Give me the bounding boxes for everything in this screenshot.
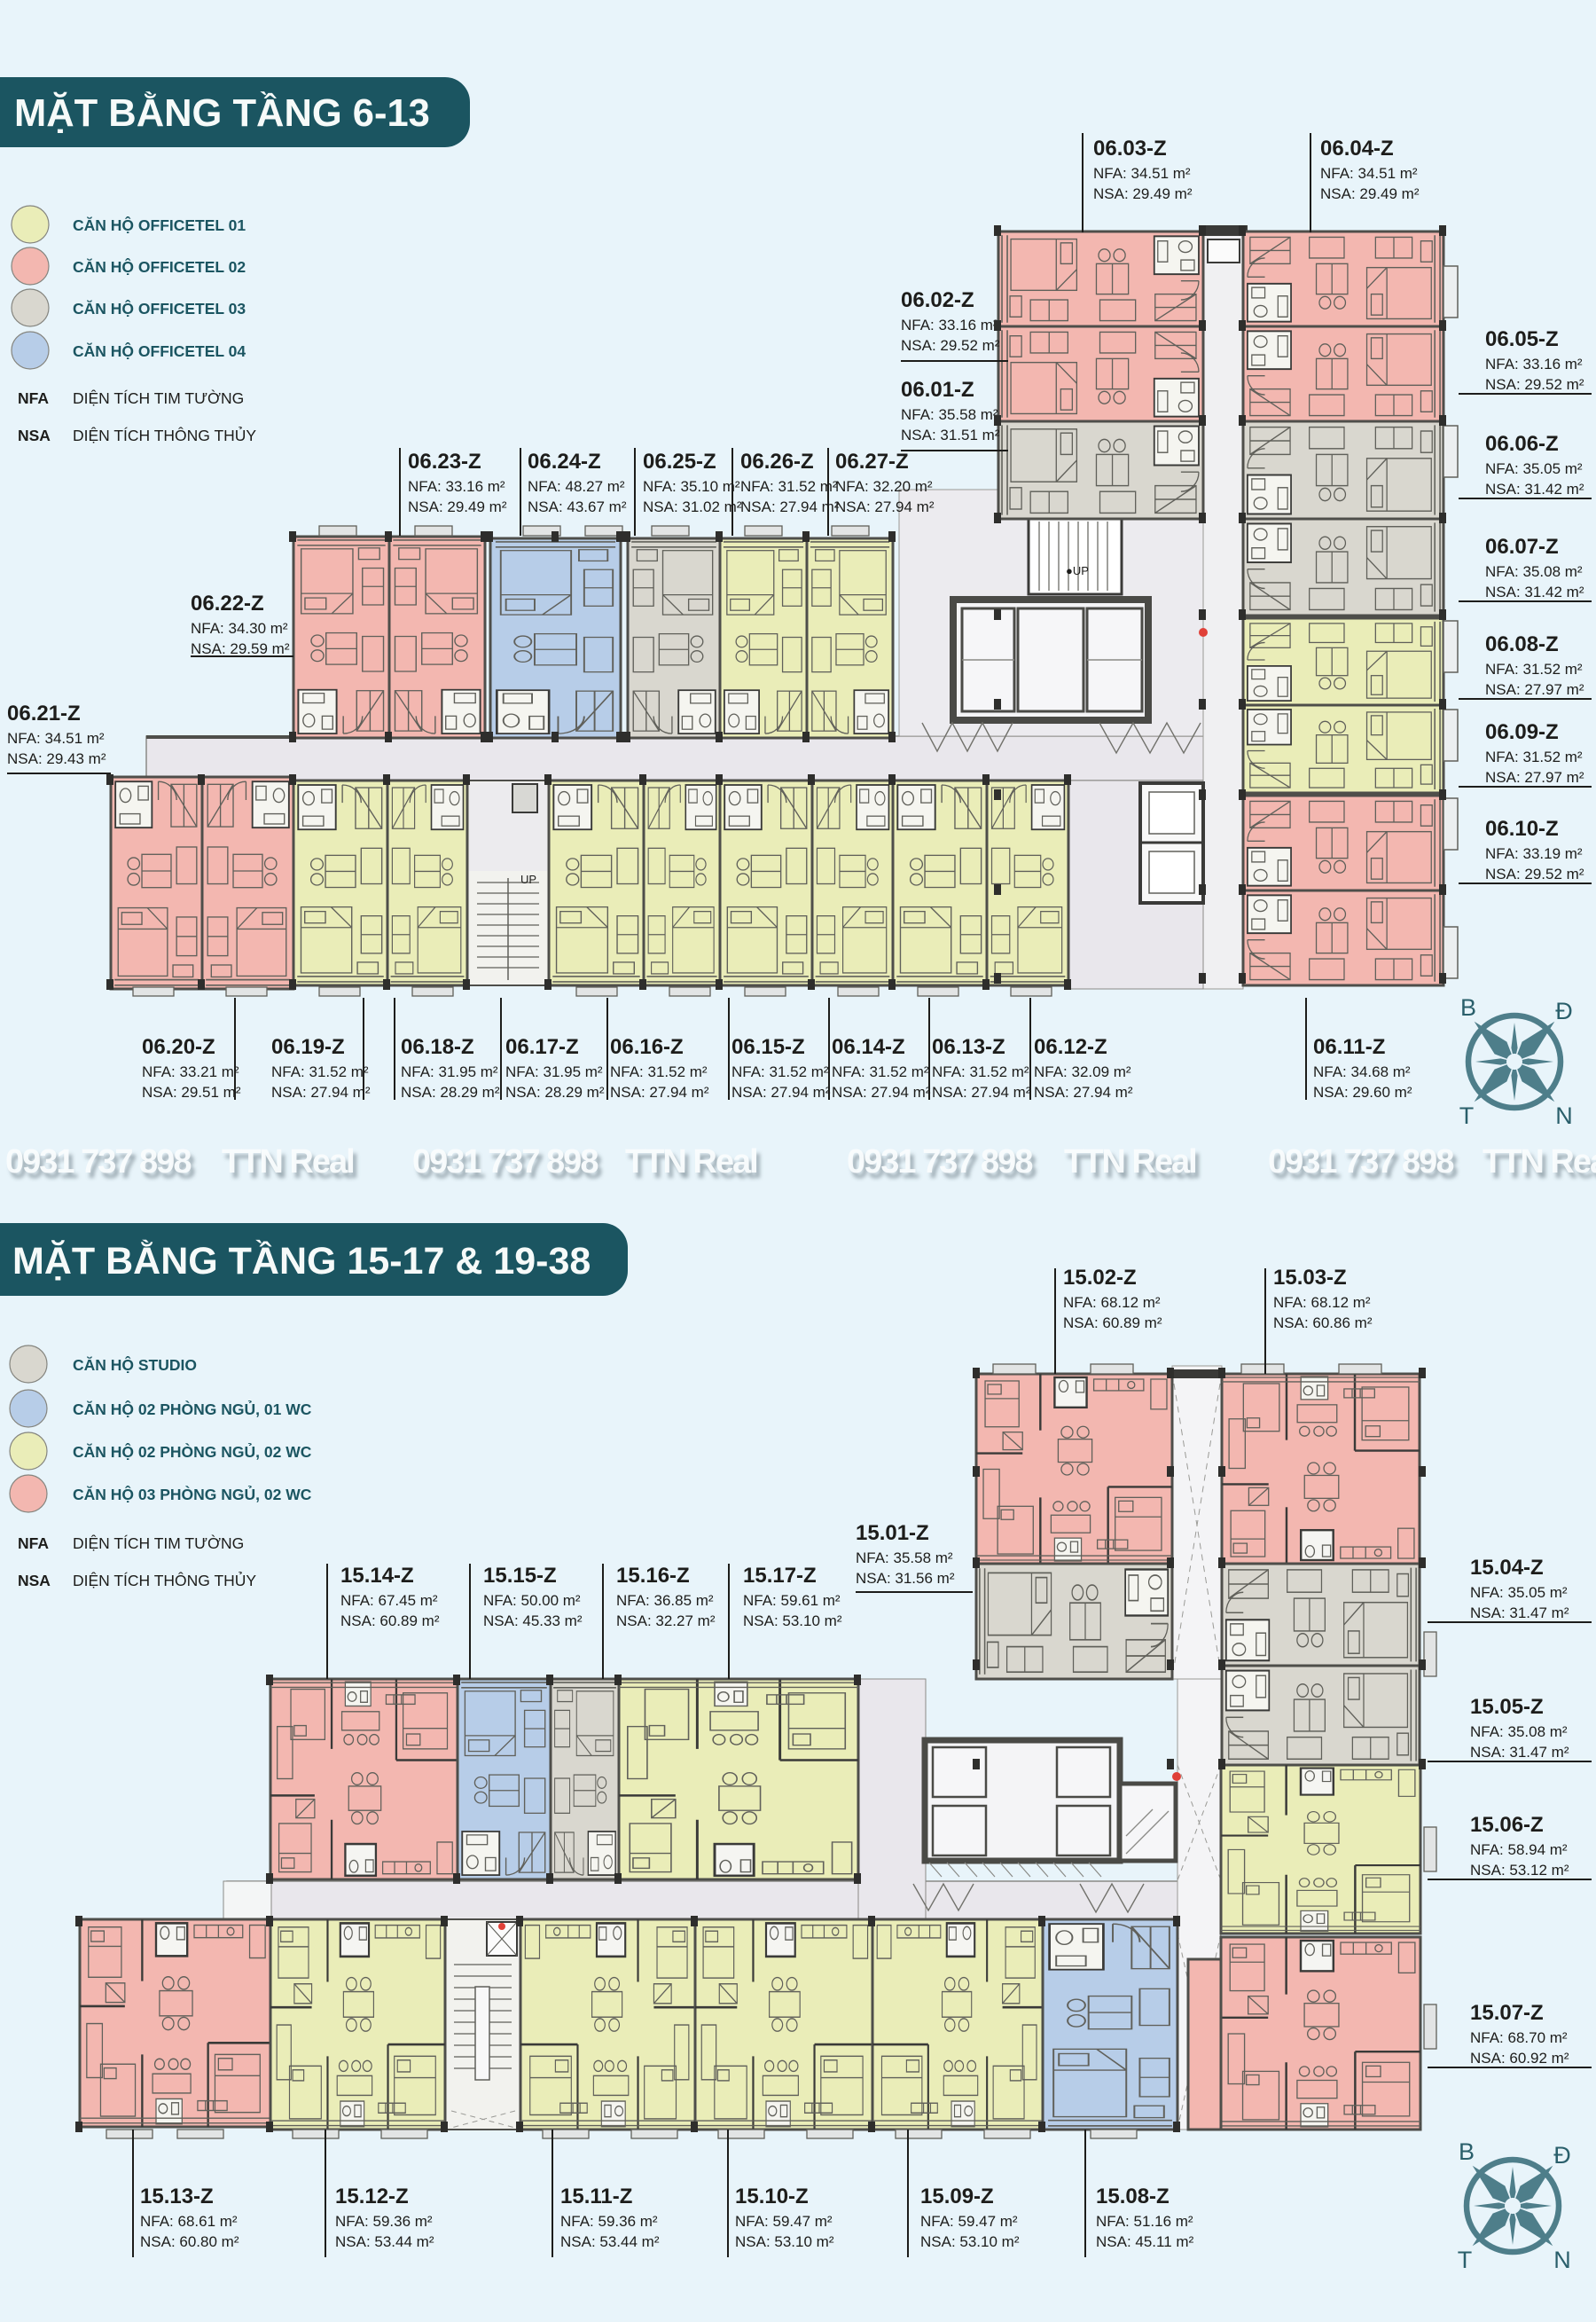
svg-text:NFA: 68.61 m²: NFA: 68.61 m² [140, 2213, 238, 2230]
svg-text:NSA: 60.89 m²: NSA: 60.89 m² [1063, 1314, 1162, 1331]
svg-text:NFA: 59.36 m²: NFA: 59.36 m² [335, 2213, 433, 2230]
svg-text:06.13-Z: 06.13-Z [932, 1035, 1005, 1059]
svg-text:NFA: 33.16 m²: NFA: 33.16 m² [408, 478, 505, 495]
svg-text:NFA: 31.52 m²: NFA: 31.52 m² [740, 478, 838, 495]
svg-text:06.04-Z: 06.04-Z [1320, 137, 1394, 161]
svg-text:NSA: 28.29 m²: NSA: 28.29 m² [401, 1084, 500, 1101]
svg-text:NSA: 28.29 m²: NSA: 28.29 m² [505, 1084, 605, 1101]
svg-text:NSA: 29.49 m²: NSA: 29.49 m² [408, 498, 507, 515]
svg-text:06.12-Z: 06.12-Z [1034, 1035, 1107, 1059]
svg-text:NSA: NSA [18, 427, 51, 444]
svg-text:NSA: 29.52 m²: NSA: 29.52 m² [1485, 866, 1584, 883]
svg-text:NFA: 33.21 m²: NFA: 33.21 m² [142, 1063, 239, 1080]
svg-text:NFA: 35.05 m²: NFA: 35.05 m² [1470, 1584, 1568, 1601]
svg-text:NFA: 35.08 m²: NFA: 35.08 m² [1485, 563, 1583, 580]
svg-text:CĂN HỘ 03 PHÒNG NGỦ, 02 WC: CĂN HỘ 03 PHÒNG NGỦ, 02 WC [73, 1485, 312, 1503]
svg-text:Đ: Đ [1553, 2142, 1571, 2169]
svg-text:CĂN HỘ 02 PHÒNG NGỦ, 02 WC: CĂN HỘ 02 PHÒNG NGỦ, 02 WC [73, 1442, 312, 1461]
svg-text:NFA: 36.85 m²: NFA: 36.85 m² [616, 1592, 714, 1609]
svg-text:NSA: 60.89 m²: NSA: 60.89 m² [340, 1612, 440, 1629]
svg-text:06.23-Z: 06.23-Z [408, 450, 481, 474]
svg-text:N: N [1553, 2247, 1571, 2273]
svg-text:NFA: 35.05 m²: NFA: 35.05 m² [1485, 460, 1583, 477]
svg-text:NFA: 31.52 m²: NFA: 31.52 m² [610, 1063, 708, 1080]
svg-text:Đ: Đ [1555, 998, 1573, 1024]
svg-text:NFA: 32.09 m²: NFA: 32.09 m² [1034, 1063, 1131, 1080]
svg-text:15.07-Z: 15.07-Z [1470, 2001, 1544, 2025]
svg-text:DIỆN TÍCH TIM TƯỜNG: DIỆN TÍCH TIM TƯỜNG [73, 1534, 244, 1552]
svg-text:NFA: 35.08 m²: NFA: 35.08 m² [1470, 1723, 1568, 1740]
svg-text:15.06-Z: 15.06-Z [1470, 1813, 1544, 1837]
svg-text:NSA: 45.11 m²: NSA: 45.11 m² [1096, 2233, 1194, 2250]
svg-text:TTN Real: TTN Real [625, 1143, 757, 1181]
svg-text:NSA: 31.42 m²: NSA: 31.42 m² [1485, 584, 1584, 600]
svg-text:NFA: NFA [18, 1534, 49, 1552]
svg-text:NSA: 53.10 m²: NSA: 53.10 m² [735, 2233, 834, 2250]
svg-text:NSA: 53.44 m²: NSA: 53.44 m² [335, 2233, 434, 2250]
svg-text:15.10-Z: 15.10-Z [735, 2185, 809, 2208]
svg-text:NFA: 34.68 m²: NFA: 34.68 m² [1313, 1063, 1411, 1080]
svg-text:NFA: 34.30 m²: NFA: 34.30 m² [191, 620, 288, 637]
svg-text:06.22-Z: 06.22-Z [191, 592, 264, 616]
svg-text:NFA: 33.16 m²: NFA: 33.16 m² [901, 317, 998, 333]
svg-text:06.19-Z: 06.19-Z [271, 1035, 345, 1059]
svg-text:NSA: 53.12 m²: NSA: 53.12 m² [1470, 1862, 1569, 1879]
svg-text:06.25-Z: 06.25-Z [643, 450, 716, 474]
svg-text:NSA: 31.42 m²: NSA: 31.42 m² [1485, 481, 1584, 498]
svg-text:NFA: 59.47 m²: NFA: 59.47 m² [920, 2213, 1018, 2230]
svg-text:B: B [1459, 2138, 1475, 2165]
svg-text:NSA: 53.10 m²: NSA: 53.10 m² [743, 1612, 842, 1629]
svg-text:06.01-Z: 06.01-Z [901, 378, 974, 402]
svg-text:NFA: 35.58 m²: NFA: 35.58 m² [901, 406, 998, 423]
svg-text:MẶT BẰNG TẦNG 6-13: MẶT BẰNG TẦNG 6-13 [14, 90, 430, 135]
svg-text:NSA: 60.92 m²: NSA: 60.92 m² [1470, 2050, 1569, 2067]
svg-text:NFA: 31.95 m²: NFA: 31.95 m² [401, 1063, 498, 1080]
svg-text:06.09-Z: 06.09-Z [1485, 720, 1559, 744]
svg-text:NFA: 35.10 m²: NFA: 35.10 m² [643, 478, 740, 495]
svg-text:NFA: 59.61 m²: NFA: 59.61 m² [743, 1592, 841, 1609]
svg-text:06.27-Z: 06.27-Z [835, 450, 909, 474]
svg-text:06.17-Z: 06.17-Z [505, 1035, 579, 1059]
svg-text:06.02-Z: 06.02-Z [901, 288, 974, 312]
svg-text:NFA: NFA [18, 389, 49, 407]
svg-text:TTN Real: TTN Real [1064, 1143, 1196, 1181]
svg-text:15.11-Z: 15.11-Z [560, 2185, 632, 2208]
svg-text:NSA: 27.94 m²: NSA: 27.94 m² [740, 498, 840, 515]
svg-text:NFA: 68.70 m²: NFA: 68.70 m² [1470, 2029, 1568, 2046]
svg-text:NSA: 60.86 m²: NSA: 60.86 m² [1273, 1314, 1373, 1331]
svg-text:NFA: 31.52 m²: NFA: 31.52 m² [932, 1063, 1029, 1080]
svg-text:NSA: 27.94 m²: NSA: 27.94 m² [271, 1084, 371, 1101]
svg-text:0931 737 898: 0931 737 898 [1268, 1143, 1453, 1181]
svg-text:CĂN HỘ 02 PHÒNG NGỦ, 01 WC: CĂN HỘ 02 PHÒNG NGỦ, 01 WC [73, 1400, 312, 1418]
svg-text:NSA: 31.56 m²: NSA: 31.56 m² [856, 1570, 955, 1587]
svg-text:NFA: 31.52 m²: NFA: 31.52 m² [1485, 749, 1583, 765]
svg-text:15.13-Z: 15.13-Z [140, 2185, 214, 2208]
svg-text:NFA: 67.45 m²: NFA: 67.45 m² [340, 1592, 438, 1609]
svg-text:NFA: 34.51 m²: NFA: 34.51 m² [1320, 165, 1418, 182]
svg-text:NSA: 31.02 m²: NSA: 31.02 m² [643, 498, 742, 515]
svg-text:NSA: 29.52 m²: NSA: 29.52 m² [901, 337, 1000, 354]
svg-text:15.02-Z: 15.02-Z [1063, 1266, 1137, 1290]
svg-text:15.08-Z: 15.08-Z [1096, 2185, 1170, 2208]
svg-text:NFA: 58.94 m²: NFA: 58.94 m² [1470, 1841, 1568, 1858]
svg-text:NSA: 31.51 m²: NSA: 31.51 m² [901, 427, 1000, 443]
svg-text:15.01-Z: 15.01-Z [856, 1521, 929, 1545]
svg-text:NSA: 27.94 m²: NSA: 27.94 m² [932, 1084, 1031, 1101]
svg-text:NSA: 27.94 m²: NSA: 27.94 m² [610, 1084, 709, 1101]
svg-text:DIỆN TÍCH TIM TƯỜNG: DIỆN TÍCH TIM TƯỜNG [73, 388, 244, 407]
svg-text:15.03-Z: 15.03-Z [1273, 1266, 1347, 1290]
svg-text:NSA: 27.94 m²: NSA: 27.94 m² [835, 498, 935, 515]
svg-text:T: T [1458, 2247, 1473, 2273]
svg-text:06.11-Z: 06.11-Z [1313, 1035, 1385, 1059]
svg-text:NSA: 29.60 m²: NSA: 29.60 m² [1313, 1084, 1412, 1101]
svg-text:06.18-Z: 06.18-Z [401, 1035, 474, 1059]
svg-text:NFA: 31.52 m²: NFA: 31.52 m² [271, 1063, 369, 1080]
svg-text:NFA: 34.51 m²: NFA: 34.51 m² [7, 730, 105, 747]
svg-text:NSA: 27.97 m²: NSA: 27.97 m² [1485, 769, 1584, 786]
svg-text:0931 737 898: 0931 737 898 [412, 1143, 598, 1181]
svg-text:CĂN HỘ STUDIO: CĂN HỘ STUDIO [73, 1355, 197, 1374]
svg-text:15.04-Z: 15.04-Z [1470, 1556, 1544, 1580]
svg-text:NFA: 31.52 m²: NFA: 31.52 m² [731, 1063, 829, 1080]
svg-text:NSA: 29.51 m²: NSA: 29.51 m² [142, 1084, 241, 1101]
svg-text:NSA: 45.33 m²: NSA: 45.33 m² [483, 1612, 583, 1629]
svg-text:15.09-Z: 15.09-Z [920, 2185, 994, 2208]
svg-text:NSA: 29.49 m²: NSA: 29.49 m² [1093, 185, 1193, 202]
svg-text:06.26-Z: 06.26-Z [740, 450, 814, 474]
svg-text:UP: UP [520, 873, 536, 886]
svg-text:NFA: 31.95 m²: NFA: 31.95 m² [505, 1063, 603, 1080]
svg-text:06.15-Z: 06.15-Z [731, 1035, 805, 1059]
svg-text:NFA: 59.47 m²: NFA: 59.47 m² [735, 2213, 833, 2230]
svg-text:NSA: 27.97 m²: NSA: 27.97 m² [1485, 681, 1584, 698]
svg-text:15.05-Z: 15.05-Z [1470, 1695, 1544, 1719]
svg-text:CĂN HỘ OFFICETEL 02: CĂN HỘ OFFICETEL 02 [73, 257, 246, 276]
svg-text:NFA: 48.27 m²: NFA: 48.27 m² [528, 478, 625, 495]
svg-text:TTN Real: TTN Real [222, 1143, 354, 1181]
svg-text:0931 737 898: 0931 737 898 [5, 1143, 191, 1181]
svg-text:NSA: 27.94 m²: NSA: 27.94 m² [1034, 1084, 1133, 1101]
svg-text:NFA: 34.51 m²: NFA: 34.51 m² [1093, 165, 1191, 182]
svg-text:NSA: 31.47 m²: NSA: 31.47 m² [1470, 1604, 1569, 1621]
svg-text:06.03-Z: 06.03-Z [1093, 137, 1167, 161]
svg-text:T: T [1459, 1102, 1475, 1129]
svg-text:06.05-Z: 06.05-Z [1485, 327, 1559, 351]
svg-text:NSA: 29.43 m²: NSA: 29.43 m² [7, 750, 106, 767]
svg-text:NSA: 31.47 m²: NSA: 31.47 m² [1470, 1744, 1569, 1761]
svg-text:NFA: 33.19 m²: NFA: 33.19 m² [1485, 845, 1583, 862]
svg-text:NFA: 51.16 m²: NFA: 51.16 m² [1096, 2213, 1193, 2230]
svg-text:NFA: 31.52 m²: NFA: 31.52 m² [832, 1063, 929, 1080]
svg-text:NSA: 29.59 m²: NSA: 29.59 m² [191, 640, 290, 657]
svg-text:TTN Real: TTN Real [1483, 1143, 1596, 1181]
svg-text:NSA: 53.44 m²: NSA: 53.44 m² [560, 2233, 660, 2250]
svg-text:06.10-Z: 06.10-Z [1485, 817, 1559, 841]
svg-text:NFA: 59.36 m²: NFA: 59.36 m² [560, 2213, 658, 2230]
svg-text:NSA: 29.49 m²: NSA: 29.49 m² [1320, 185, 1420, 202]
svg-text:B: B [1460, 994, 1476, 1021]
svg-text:MẶT BẰNG TẦNG 15-17 & 19-38: MẶT BẰNG TẦNG 15-17 & 19-38 [12, 1240, 591, 1283]
svg-text:NSA: 32.27 m²: NSA: 32.27 m² [616, 1612, 716, 1629]
svg-text:06.06-Z: 06.06-Z [1485, 432, 1559, 456]
svg-text:CĂN HỘ OFFICETEL 01: CĂN HỘ OFFICETEL 01 [73, 216, 246, 234]
svg-text:NFA: 31.52 m²: NFA: 31.52 m² [1485, 661, 1583, 678]
svg-text:DIỆN TÍCH THÔNG THỦY: DIỆN TÍCH THÔNG THỦY [73, 426, 256, 444]
svg-text:06.08-Z: 06.08-Z [1485, 632, 1559, 656]
svg-text:NSA: 27.94 m²: NSA: 27.94 m² [731, 1084, 831, 1101]
svg-text:NFA: 32.20 m²: NFA: 32.20 m² [835, 478, 933, 495]
svg-text:06.20-Z: 06.20-Z [142, 1035, 215, 1059]
svg-text:NFA: 35.58 m²: NFA: 35.58 m² [856, 1549, 953, 1566]
svg-text:15.14-Z: 15.14-Z [340, 1564, 414, 1588]
svg-text:15.12-Z: 15.12-Z [335, 2185, 409, 2208]
svg-text:15.15-Z: 15.15-Z [483, 1564, 557, 1588]
svg-text:NSA: 29.52 m²: NSA: 29.52 m² [1485, 376, 1584, 393]
svg-text:06.24-Z: 06.24-Z [528, 450, 601, 474]
svg-text:06.21-Z: 06.21-Z [7, 702, 81, 726]
svg-text:CĂN HỘ OFFICETEL 03: CĂN HỘ OFFICETEL 03 [73, 299, 246, 318]
svg-text:NFA: 50.00 m²: NFA: 50.00 m² [483, 1592, 581, 1609]
svg-text:N: N [1555, 1102, 1573, 1129]
svg-text:NFA: 68.12 m²: NFA: 68.12 m² [1063, 1294, 1161, 1311]
svg-text:NSA: 27.94 m²: NSA: 27.94 m² [832, 1084, 931, 1101]
svg-text:●UP: ●UP [1066, 564, 1089, 577]
svg-text:06.07-Z: 06.07-Z [1485, 535, 1559, 559]
svg-text:NFA: 68.12 m²: NFA: 68.12 m² [1273, 1294, 1371, 1311]
svg-text:NSA: NSA [18, 1572, 51, 1589]
svg-text:15.16-Z: 15.16-Z [616, 1564, 690, 1588]
svg-text:06.16-Z: 06.16-Z [610, 1035, 684, 1059]
svg-text:NSA: 53.10 m²: NSA: 53.10 m² [920, 2233, 1020, 2250]
svg-text:NFA: 33.16 m²: NFA: 33.16 m² [1485, 356, 1583, 373]
svg-text:CĂN HỘ OFFICETEL 04: CĂN HỘ OFFICETEL 04 [73, 341, 246, 360]
svg-text:DIỆN TÍCH THÔNG THỦY: DIỆN TÍCH THÔNG THỦY [73, 1571, 256, 1589]
svg-text:06.14-Z: 06.14-Z [832, 1035, 905, 1059]
svg-text:NSA: 43.67 m²: NSA: 43.67 m² [528, 498, 627, 515]
svg-text:0931 737 898: 0931 737 898 [847, 1143, 1032, 1181]
svg-text:15.17-Z: 15.17-Z [743, 1564, 817, 1588]
svg-text:NSA: 60.80 m²: NSA: 60.80 m² [140, 2233, 239, 2250]
